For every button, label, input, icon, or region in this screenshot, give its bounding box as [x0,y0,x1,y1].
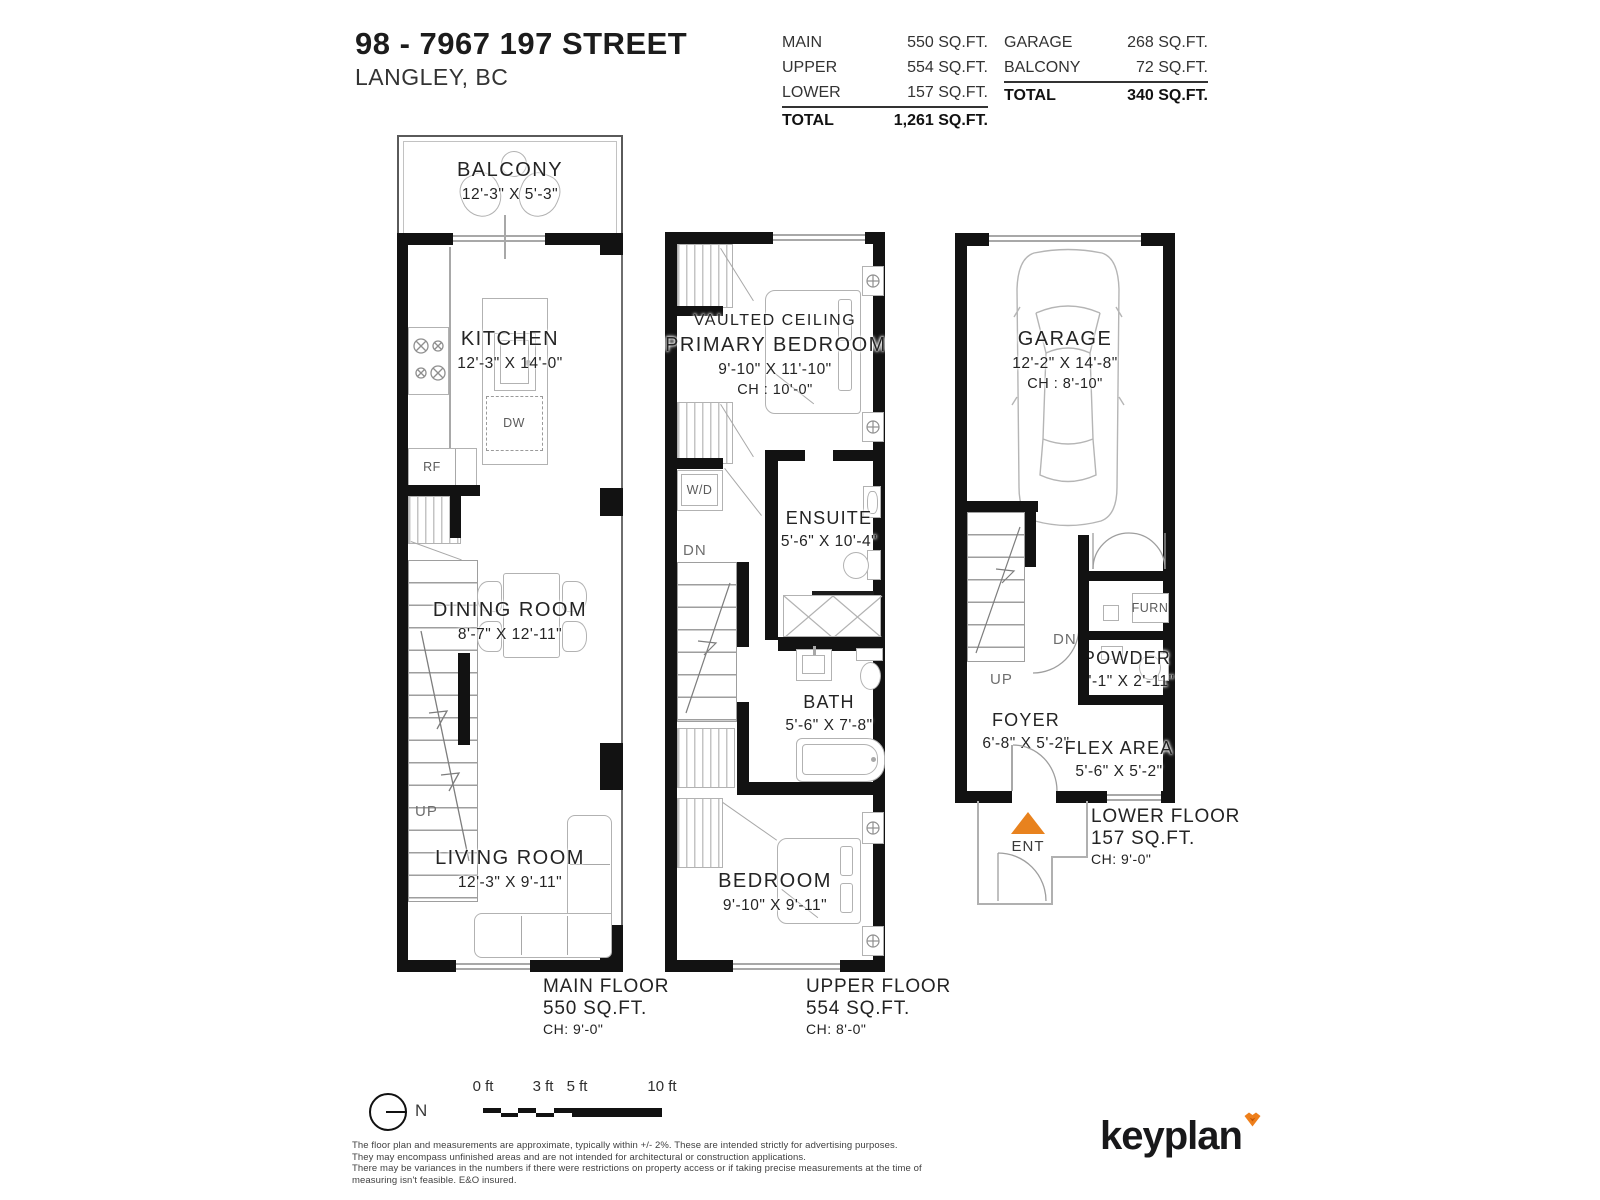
table-divider [782,106,988,108]
entry-arrow-icon [1011,812,1045,834]
row-label: LOWER [782,84,841,102]
disclaimer-line: There may be variances in the numbers if… [352,1163,952,1186]
room-dims: 8'-7" X 12'-11" [397,626,623,644]
room-name: BALCONY [397,159,623,182]
scale-tick: 10 ft [647,1078,676,1095]
wall-segment [450,496,461,538]
wall-segment [737,562,749,647]
north-label: N [415,1101,427,1121]
total-label: TOTAL [782,112,834,130]
row-label: MAIN [782,34,822,52]
closet [677,798,723,868]
scale-segment [536,1113,554,1118]
room-name: LIVING ROOM [397,847,623,870]
closet [677,728,735,788]
room-name: ENSUITE [773,508,885,529]
room-ceiling: CH : 10'-0" [665,382,885,399]
room-name: BEDROOM [665,870,885,893]
room-label-dining: DINING ROOM 8'-7" X 12'-11" [397,599,623,644]
wall-segment [1089,695,1175,705]
room-label-kitchen: KITCHEN 12'-3" X 14'-0" [397,328,623,373]
total-value: 340 SQ.FT. [1127,87,1208,105]
wall-segment [1078,535,1089,635]
caption-lower-floor: LOWER FLOOR 157 SQ.FT. CH: 9'-0" [1091,806,1240,868]
window [456,960,530,972]
room-dims: 5'-1" X 2'-11" [1077,673,1177,691]
wall-segment [600,233,623,255]
water-heater-icon [1103,605,1119,621]
room-name: BATH [773,692,885,713]
wall-segment [960,501,1038,512]
floor-ceiling: CH: 9'-0" [1091,850,1240,868]
room-label-ensuite: ENSUITE 5'-6" X 10'-4" [773,508,885,551]
room-label-primary-bedroom: VAULTED CEILING PRIMARY BEDROOM 9'-10" X… [665,312,885,399]
stairs [677,562,737,722]
room-dims: 9'-10" X 9'-11" [665,897,885,915]
door-arc [1013,745,1057,791]
toilet-tank [867,550,881,580]
washer-dryer-icon: W/D [677,470,723,511]
room-name: FOYER [971,710,1081,731]
floor-ceiling: CH: 8'-0" [806,1020,951,1038]
furnace-label: FURN [1133,594,1167,621]
bathtub-icon [796,738,885,782]
door-arc [1033,627,1079,673]
room-name: GARAGE [955,328,1175,351]
room-dims: 9'-10" X 11'-10" [665,361,885,379]
row-value: 554 SQ.FT. [907,59,988,77]
room-dims: 12'-2" X 14'-8" [955,355,1175,373]
disclaimer-line: They may encompass unfinished areas and … [352,1152,952,1164]
garage-door [989,235,1141,237]
room-dims: 12'-3" X 5'-3" [397,186,623,204]
wall-segment [955,233,989,246]
room-dims: 12'-3" X 9'-11" [397,874,623,892]
window [1107,791,1161,803]
page-subtitle: LANGLEY, BC [355,64,508,91]
wall-segment [458,653,470,745]
floorplan-lower: GARAGE 12'-2" X 14'-8" CH : 8'-10" UP DN [955,233,1175,803]
north-arrow-icon [369,1093,407,1131]
room-name: POWDER [1077,648,1177,669]
scale-tick: 0 ft [473,1078,494,1095]
room-label-bath: BATH 5'-6" X 7'-8" [773,692,885,735]
toilet-tank [856,648,883,661]
sofa-icon [474,913,612,958]
floorplan-upper: VAULTED CEILING PRIMARY BEDROOM 9'-10" X… [665,232,885,972]
floor-name: LOWER FLOOR [1091,806,1240,828]
scale-segment [572,1108,662,1117]
door-center-line [504,215,506,259]
wall-segment [1078,635,1089,705]
stairs-down-label: DN [683,542,707,559]
room-name: PRIMARY BEDROOM [665,334,885,357]
window [773,232,865,244]
wall-segment [737,782,885,795]
floor-ceiling: CH: 9'-0" [543,1020,669,1038]
dishwasher-label: DW [487,397,541,448]
keyplan-logo: keyplan [1100,1114,1259,1159]
wall-segment [1025,512,1036,567]
total-value: 1,261 SQ.FT. [894,112,988,130]
scale-tick: 3 ft [533,1078,554,1095]
room-dims: 5'-6" X 5'-2" [1063,763,1175,781]
bathroom-sink-icon [796,649,832,681]
floor-name: UPPER FLOOR [806,976,951,998]
double-door-icon [1093,533,1165,569]
shower-door [812,591,874,595]
shower-icon [783,595,881,637]
vaulted-ceiling-note: VAULTED CEILING [665,312,885,330]
scale-bar: 0 ft 3 ft 5 ft 10 ft [470,1078,690,1124]
logo-text: keyplan [1100,1114,1242,1158]
floorplan-page: 98 - 7967 197 STREET LANGLEY, BC MAIN 55… [0,0,1600,1200]
wall-segment [600,743,623,790]
washer-dryer-label: W/D [678,471,721,509]
room-label-living: LIVING ROOM 12'-3" X 9'-11" [397,847,623,892]
wall-segment [737,702,749,795]
scale-segment [554,1108,572,1113]
row-label: UPPER [782,59,837,77]
stairs-up-label: UP [990,671,1013,688]
row-label: BALCONY [1004,59,1080,77]
table-divider [1004,81,1208,83]
wall-segment [677,458,723,469]
room-label-bedroom: BEDROOM 9'-10" X 9'-11" [665,870,885,915]
row-value: 550 SQ.FT. [907,34,988,52]
fox-icon [1244,1112,1261,1127]
wall-segment [397,485,480,496]
wall-segment [1089,631,1175,640]
disclaimer-line: The floor plan and measurements are appr… [352,1140,952,1152]
room-dims: 5'-6" X 10'-4" [773,533,885,551]
wall-segment [833,450,885,461]
dishwasher-icon: DW [486,396,543,451]
floor-area: 550 SQ.FT. [543,998,669,1020]
disclaimer: The floor plan and measurements are appr… [352,1140,952,1186]
room-label-powder: POWDER 5'-1" X 2'-11" [1077,648,1177,691]
room-dims: 12'-3" X 14'-0" [397,355,623,373]
room-label-garage: GARAGE 12'-2" X 14'-8" CH : 8'-10" [955,328,1175,392]
floorplan-main: BALCONY 12'-3" X 5'-3" [397,135,623,972]
entry-label: ENT [1008,838,1048,855]
total-label: TOTAL [1004,87,1056,105]
wall-segment [1141,233,1175,246]
room-ceiling: CH : 8'-10" [955,376,1175,393]
room-dims: 5'-6" X 7'-8" [773,717,885,735]
caption-main-floor: MAIN FLOOR 550 SQ.FT. CH: 9'-0" [543,976,669,1038]
scale-segment [501,1113,518,1118]
row-label: GARAGE [1004,34,1072,52]
room-name: FLEX AREA [1063,738,1175,759]
room-name: DINING ROOM [397,599,623,622]
stairs-up-label: UP [415,803,438,820]
window [733,960,840,972]
sliding-door [453,233,545,245]
row-value: 157 SQ.FT. [907,84,988,102]
scale-segment [518,1108,536,1113]
stairs [967,512,1025,662]
caption-upper-floor: UPPER FLOOR 554 SQ.FT. CH: 8'-0" [806,976,951,1038]
wall-segment [600,488,623,516]
floor-area: 157 SQ.FT. [1091,828,1240,850]
floor-area: 554 SQ.FT. [806,998,951,1020]
fridge-icon: RF [408,448,477,487]
nightstand-icon [862,812,884,844]
scale-segment [483,1108,501,1113]
toilet-icon [843,552,869,579]
page-title: 98 - 7967 197 STREET [355,26,687,62]
toilet-icon [860,662,881,690]
room-label-balcony: BALCONY 12'-3" X 5'-3" [397,159,623,204]
floor-name: MAIN FLOOR [543,976,669,998]
nightstand-icon [862,266,884,296]
row-value: 268 SQ.FT. [1127,34,1208,52]
nightstand-icon [862,412,884,442]
wall-segment [1089,571,1175,581]
room-label-flex: FLEX AREA 5'-6" X 5'-2" [1063,738,1175,781]
room-name: KITCHEN [397,328,623,351]
scale-tick: 5 ft [567,1078,588,1095]
row-value: 72 SQ.FT. [1136,59,1208,77]
nightstand-icon [862,926,884,956]
furnace-icon: FURN [1132,593,1169,623]
garage-door [989,240,1141,242]
fridge-label: RF [409,449,455,485]
